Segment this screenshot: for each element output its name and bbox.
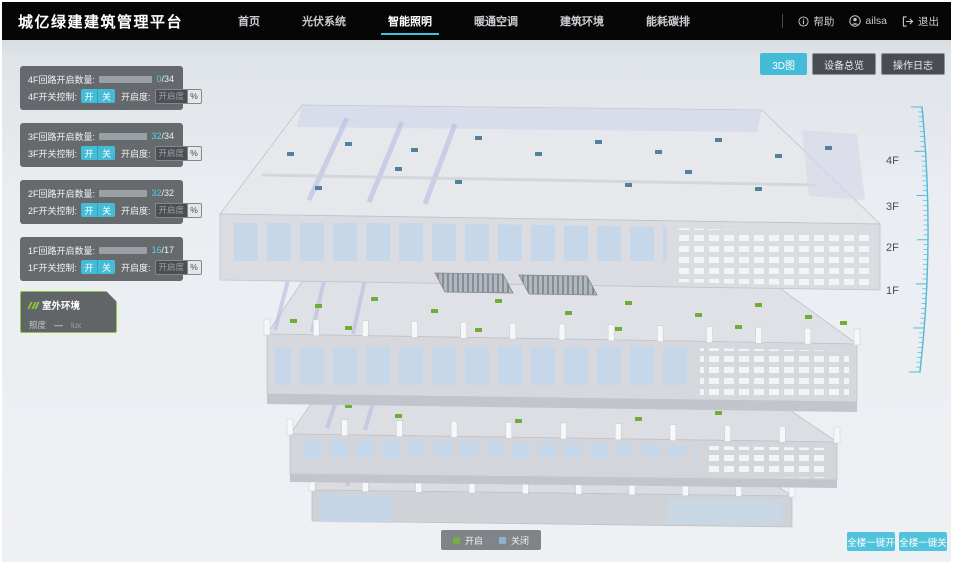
legend-off: 关闭 xyxy=(499,534,529,547)
floor-label-3f[interactable]: 3F xyxy=(886,201,899,213)
switch-3f: 开 关 xyxy=(81,146,115,160)
view-buttons: 3D图 设备总览 操作日志 xyxy=(760,53,945,75)
off-swatch-icon xyxy=(499,537,506,544)
nav-item-lighting[interactable]: 智能照明 xyxy=(367,2,453,40)
view-3d-button[interactable]: 3D图 xyxy=(760,53,807,75)
header-bar: 城亿绿建建筑管理平台 首页 光伏系统 智能照明 暖通空调 建筑环境 能耗碳排 帮… xyxy=(2,2,951,40)
dim-input-1f[interactable] xyxy=(155,260,188,275)
switch-label-1f: 1F开关控制: xyxy=(28,261,77,274)
all-off-button[interactable]: 全楼一键关 xyxy=(899,532,947,551)
count-label-4f: 4F回路开启数量: xyxy=(28,73,95,86)
dim-input-4f[interactable] xyxy=(155,89,188,104)
switch-1f: 开 关 xyxy=(81,260,115,274)
count-total-4f: /34 xyxy=(161,74,174,84)
global-control-buttons: 全楼一键开 全楼一键关 xyxy=(847,532,947,551)
percent-button-4f[interactable]: % xyxy=(188,89,202,104)
logout-button[interactable]: 退出 xyxy=(902,14,939,29)
logout-icon xyxy=(902,16,914,27)
all-on-button[interactable]: 全楼一键开 xyxy=(847,532,895,551)
screen-frame: 城亿绿建建筑管理平台 首页 光伏系统 智能照明 暖通空调 建筑环境 能耗碳排 帮… xyxy=(0,0,953,564)
switch-2f: 开 关 xyxy=(81,203,115,217)
nav-item-pv[interactable]: 光伏系统 xyxy=(281,2,367,40)
count-label-3f: 3F回路开启数量: xyxy=(28,130,95,143)
lights-legend: 开启 关闭 xyxy=(441,530,541,550)
count-value-3f: 32 xyxy=(151,131,161,141)
dim-input-2f[interactable] xyxy=(155,203,188,218)
dim-label-2f: 开启度: xyxy=(121,204,151,217)
off-button-4f[interactable]: 关 xyxy=(98,89,115,103)
main-nav: 首页 光伏系统 智能照明 暖通空调 建筑环境 能耗碳排 xyxy=(217,2,711,40)
progress-bar-1f xyxy=(99,247,147,254)
user-icon xyxy=(849,15,861,27)
operation-log-button[interactable]: 操作日志 xyxy=(881,53,945,75)
floor-label-2f[interactable]: 2F xyxy=(886,242,899,254)
legend-on-label: 开启 xyxy=(465,534,483,547)
count-total-2f: /32 xyxy=(161,188,174,198)
floor-ruler-scale xyxy=(902,102,942,377)
panel-4f: 4F回路开启数量: 0 /34 4F开关控制: 开 关 开启度: % xyxy=(20,66,183,110)
on-swatch-icon xyxy=(453,537,460,544)
header-divider xyxy=(782,14,783,28)
logout-label: 退出 xyxy=(918,14,939,29)
count-label-2f: 2F回路开启数量: xyxy=(28,187,95,200)
count-value-2f: 32 xyxy=(151,188,161,198)
progress-bar-3f xyxy=(99,133,147,140)
outdoor-env-panel: 室外环境 照度 — lux xyxy=(20,291,117,333)
count-total-1f: /17 xyxy=(161,245,174,255)
switch-label-3f: 3F开关控制: xyxy=(28,147,77,160)
app-title: 城亿绿建建筑管理平台 xyxy=(18,11,183,32)
off-button-2f[interactable]: 关 xyxy=(98,203,115,217)
percent-button-1f[interactable]: % xyxy=(188,260,202,275)
dim-label-4f: 开启度: xyxy=(121,90,151,103)
illuminance-label: 照度 xyxy=(29,319,46,331)
percent-button-2f[interactable]: % xyxy=(188,203,202,218)
illuminance-value: — xyxy=(54,320,63,330)
slashes-icon xyxy=(29,302,38,309)
building-3d-view[interactable] xyxy=(197,90,897,535)
on-button-3f[interactable]: 开 xyxy=(81,146,98,160)
floor-4f-model xyxy=(220,105,880,290)
off-button-3f[interactable]: 关 xyxy=(98,146,115,160)
help-icon xyxy=(798,16,809,27)
panel-3f: 3F回路开启数量: 32 /34 3F开关控制: 开 关 开启度: % xyxy=(20,123,183,167)
panel-1f: 1F回路开启数量: 16 /17 1F开关控制: 开 关 开启度: % xyxy=(20,237,183,281)
floor-label-4f[interactable]: 4F xyxy=(886,155,899,167)
progress-bar-4f xyxy=(99,76,152,83)
username: ailsa xyxy=(865,15,887,27)
app-root: 城亿绿建建筑管理平台 首页 光伏系统 智能照明 暖通空调 建筑环境 能耗碳排 帮… xyxy=(2,2,951,562)
outdoor-title: 室外环境 xyxy=(42,298,80,312)
on-button-2f[interactable]: 开 xyxy=(81,203,98,217)
nav-item-env[interactable]: 建筑环境 xyxy=(539,2,625,40)
header-utils: 帮助 ailsa 退出 xyxy=(782,14,939,29)
count-label-1f: 1F回路开启数量: xyxy=(28,244,95,257)
percent-button-3f[interactable]: % xyxy=(188,146,202,161)
on-button-1f[interactable]: 开 xyxy=(81,260,98,274)
user-menu[interactable]: ailsa xyxy=(849,15,887,27)
panel-2f: 2F回路开启数量: 32 /32 2F开关控制: 开 关 开启度: % xyxy=(20,180,183,224)
legend-on: 开启 xyxy=(453,534,483,547)
help-label: 帮助 xyxy=(813,14,834,29)
nav-item-hvac[interactable]: 暖通空调 xyxy=(453,2,539,40)
dim-label-1f: 开启度: xyxy=(121,261,151,274)
device-overview-button[interactable]: 设备总览 xyxy=(812,53,876,75)
nav-item-home[interactable]: 首页 xyxy=(217,2,281,40)
switch-4f: 开 关 xyxy=(81,89,115,103)
switch-label-2f: 2F开关控制: xyxy=(28,204,77,217)
count-value-1f: 16 xyxy=(151,245,161,255)
on-button-4f[interactable]: 开 xyxy=(81,89,98,103)
switch-label-4f: 4F开关控制: xyxy=(28,90,77,103)
dim-input-3f[interactable] xyxy=(155,146,188,161)
nav-item-energy[interactable]: 能耗碳排 xyxy=(625,2,711,40)
dim-label-3f: 开启度: xyxy=(121,147,151,160)
off-button-1f[interactable]: 关 xyxy=(98,260,115,274)
illuminance-unit: lux xyxy=(71,321,81,330)
progress-bar-2f xyxy=(99,190,147,197)
help-button[interactable]: 帮助 xyxy=(798,14,834,29)
count-total-3f: /34 xyxy=(161,131,174,141)
legend-off-label: 关闭 xyxy=(511,534,529,547)
floor-label-1f[interactable]: 1F xyxy=(886,285,899,297)
